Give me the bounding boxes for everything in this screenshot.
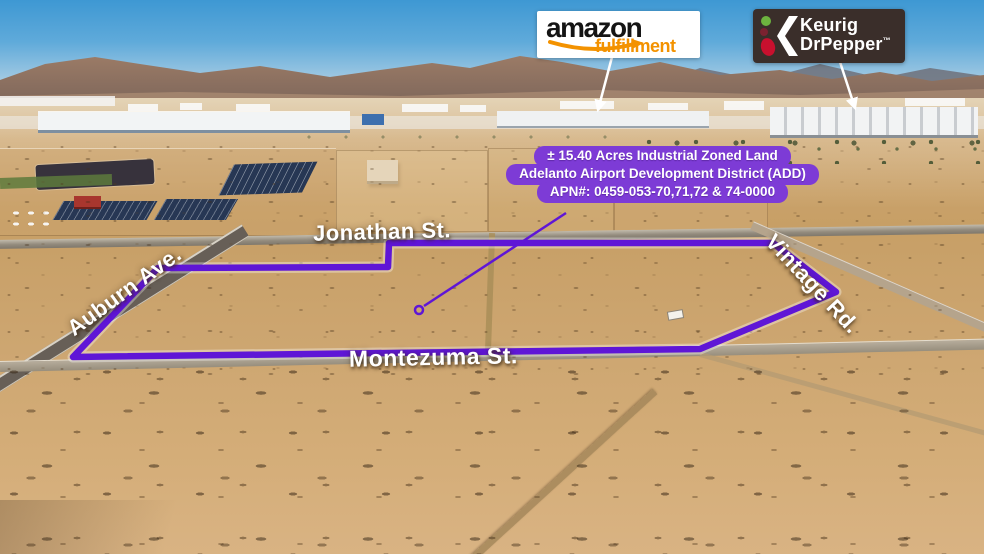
aerial-listing-image: Jonathan St. Auburn Ave. Montezuma St. V… — [0, 0, 984, 554]
keurig-line2: DrPepper™ — [800, 35, 891, 54]
blue-container — [362, 114, 384, 125]
street-label-montezuma: Montezuma St. — [349, 342, 518, 373]
badge-apn-line: APN#: 0459-053-70,71,72 & 74-0000 — [537, 182, 788, 203]
corner-shadow — [0, 500, 240, 554]
warehouse-amazon — [497, 111, 709, 128]
property-info-badge: ± 15.40 Acres Industrial Zoned Land Adel… — [490, 146, 835, 203]
distant-building — [905, 98, 965, 106]
keurig-drpepper-logo-card: Keurig DrPepper™ — [753, 9, 905, 63]
distant-building — [402, 104, 448, 112]
distant-building — [236, 104, 270, 111]
keurig-k-icon — [759, 14, 799, 59]
keurig-wordmark: Keurig DrPepper™ — [800, 16, 891, 55]
amazon-logo-card: amazon fulfillment — [537, 11, 700, 58]
street-label-jonathan: Jonathan St. — [313, 217, 452, 247]
distant-building — [648, 103, 688, 110]
trademark-symbol: ™ — [883, 36, 891, 45]
distant-building — [724, 101, 764, 110]
amazon-fulfillment-label: fulfillment — [595, 36, 676, 57]
keurig-line1: Keurig — [800, 16, 891, 35]
distant-town — [0, 96, 115, 106]
distant-building — [180, 103, 202, 110]
distant-building — [460, 105, 486, 112]
distant-building — [560, 101, 614, 109]
distant-building — [128, 104, 158, 111]
